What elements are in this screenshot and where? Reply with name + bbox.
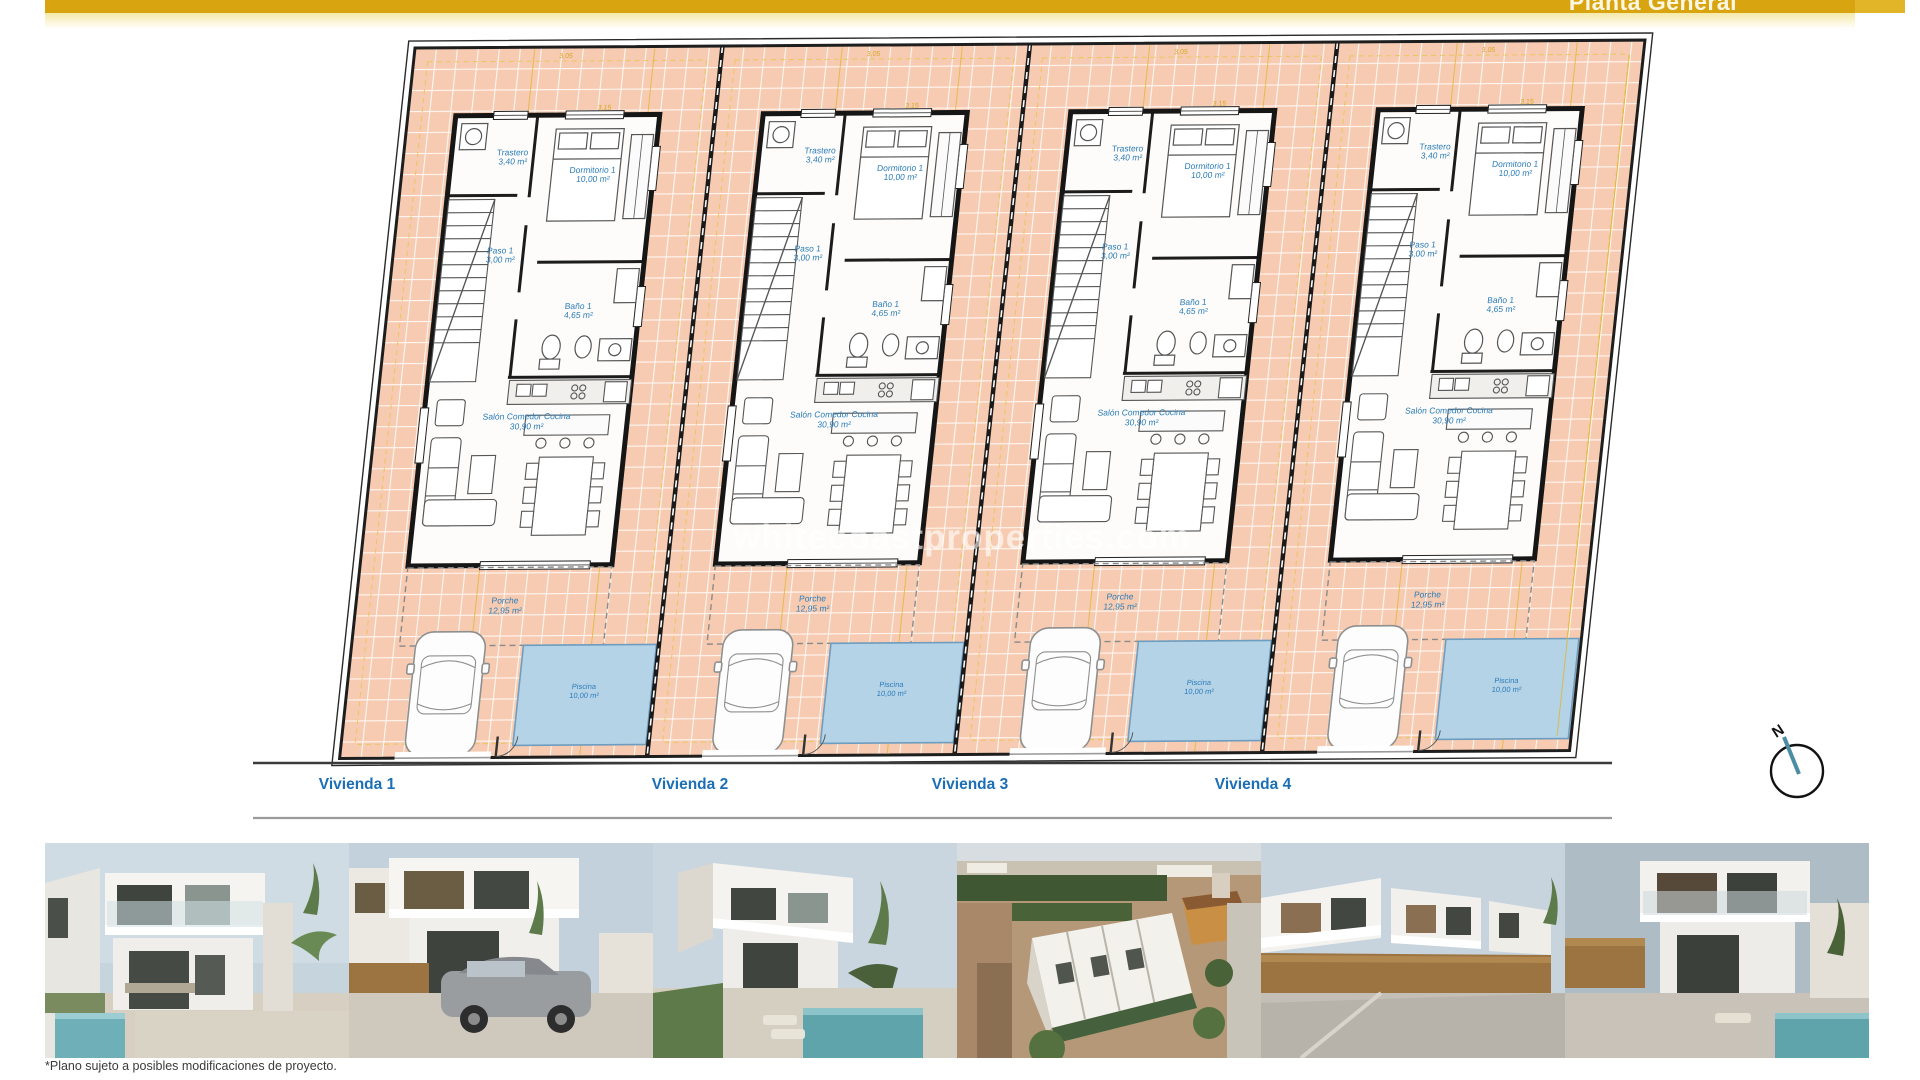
photo-aerial-view <box>957 843 1261 1058</box>
compass: N <box>1769 721 1823 797</box>
unit-label-vivienda-4: Vivienda 4 <box>1215 776 1292 793</box>
unit-label-vivienda-3: Vivienda 3 <box>932 776 1009 793</box>
site-area <box>332 33 1653 766</box>
photo-villa-corner-pool <box>653 843 957 1058</box>
unit-label-vivienda-2: Vivienda 2 <box>652 776 728 793</box>
photo-strip <box>45 843 1869 1058</box>
photo-villa-with-car <box>349 843 653 1058</box>
photo-villa-dusk-pool <box>1565 843 1869 1058</box>
watermark: whitecoastproperties.com <box>732 518 1191 557</box>
site-plan: 3,05 3,15 Trastero 3,40 m² Dormitorio 1 … <box>0 0 1920 842</box>
photo-villa-front-pool <box>45 843 349 1058</box>
photo-street-row <box>1261 843 1565 1058</box>
disclaimer-text: *Plano sujeto a posibles modificaciones … <box>45 1059 337 1073</box>
unit-label-vivienda-1: Vivienda 1 <box>319 776 396 793</box>
